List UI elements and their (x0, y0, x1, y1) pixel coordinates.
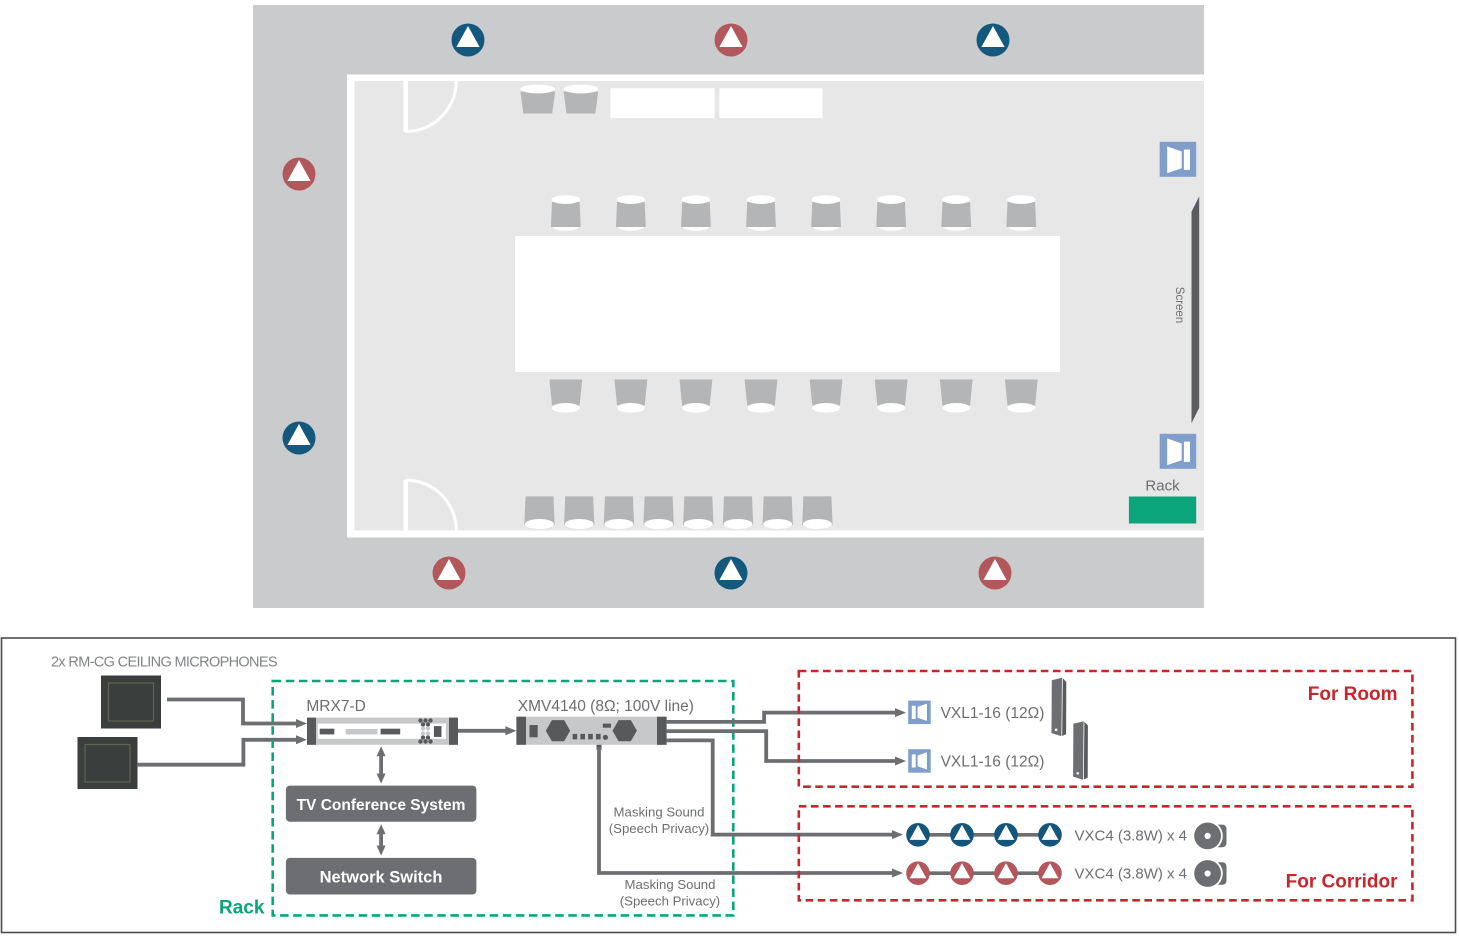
svg-text:Masking Sound: Masking Sound (614, 805, 705, 820)
svg-text:VXC4 (3.8W) x 4: VXC4 (3.8W) x 4 (1075, 866, 1188, 883)
svg-text:VXL1-16 (12Ω): VXL1-16 (12Ω) (941, 754, 1045, 771)
svg-text:(Speech Privacy): (Speech Privacy) (609, 821, 709, 836)
svg-text:For Room: For Room (1308, 684, 1398, 705)
svg-text:(Speech Privacy): (Speech Privacy) (620, 894, 720, 909)
svg-text:Rack: Rack (1145, 478, 1180, 495)
svg-text:Network Switch: Network Switch (320, 869, 443, 887)
svg-text:VXC4 (3.8W) x 4: VXC4 (3.8W) x 4 (1075, 827, 1188, 844)
svg-text:2x RM-CG CEILING MICROPHONES: 2x RM-CG CEILING MICROPHONES (51, 655, 277, 671)
svg-text:Masking Sound: Masking Sound (625, 877, 716, 892)
svg-text:VXL1-16 (12Ω): VXL1-16 (12Ω) (941, 705, 1045, 722)
svg-text:TV Conference System: TV Conference System (297, 797, 466, 814)
svg-text:For Corridor: For Corridor (1286, 872, 1398, 893)
svg-text:XMV4140 (8Ω; 100V line): XMV4140 (8Ω; 100V line) (518, 698, 694, 715)
svg-text:MRX7-D: MRX7-D (306, 698, 365, 715)
svg-text:Screen: Screen (1173, 287, 1185, 323)
svg-text:Rack: Rack (219, 898, 265, 919)
